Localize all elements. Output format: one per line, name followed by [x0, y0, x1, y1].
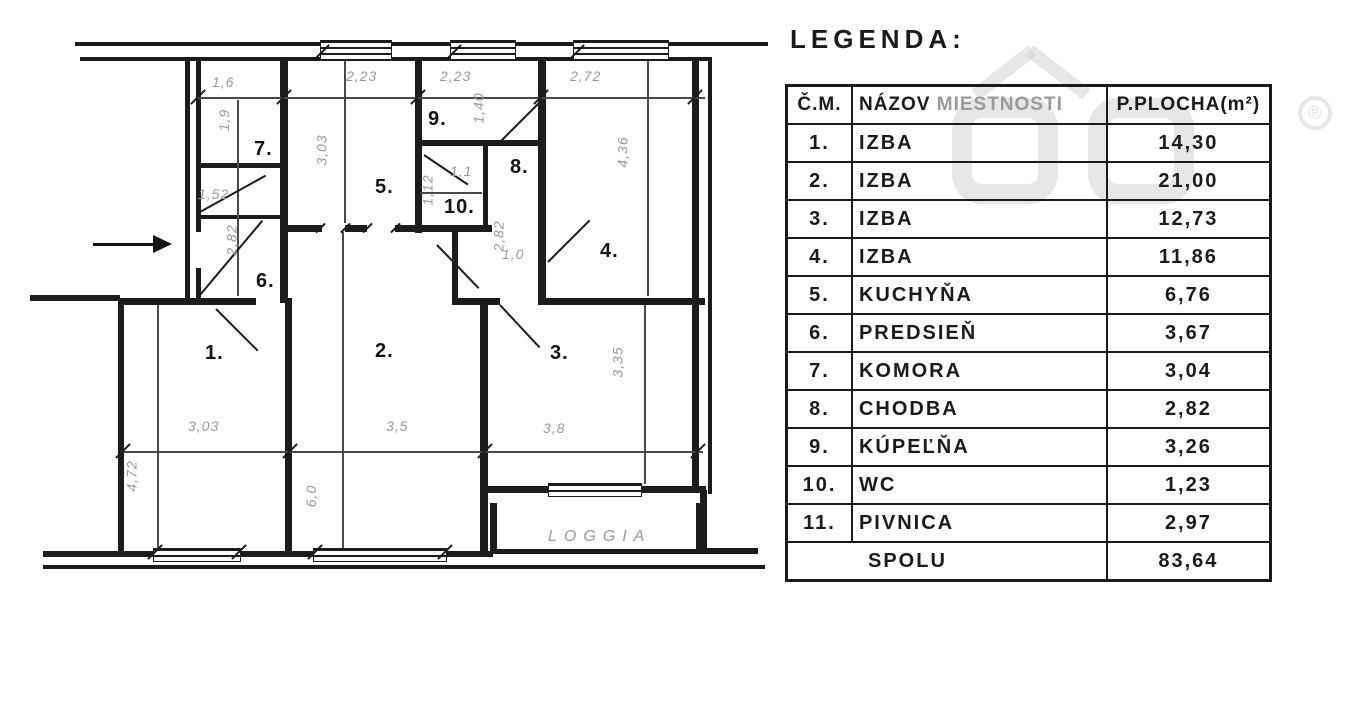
window — [313, 548, 447, 562]
window — [320, 40, 392, 61]
floor-plan: 1.2.3.4.5.6.7.8.9.10.1,61,91,522,822,233… — [0, 0, 784, 720]
cell-room-name: KUCHYŇA — [852, 276, 1107, 314]
dimension-label: 2,23 — [346, 68, 377, 84]
dimension-line — [647, 60, 649, 296]
cell-room-name: IZBA — [852, 200, 1107, 238]
entrance-arrow — [93, 243, 155, 246]
room-number-label: 9. — [428, 108, 447, 131]
dimension-line — [237, 100, 239, 296]
window — [548, 483, 642, 497]
dimension-label: 3,8 — [543, 420, 565, 436]
total-area: 83,64 — [1107, 542, 1271, 581]
header-room-name: NÁZOV MIESTNOSTI — [852, 86, 1107, 125]
cell-room-name: KOMORA — [852, 352, 1107, 390]
legend-row: 1.IZBA14,30 — [787, 124, 1271, 162]
dimension-line — [344, 60, 346, 223]
cell-room-number: 5. — [787, 276, 852, 314]
cell-floor-area: 21,00 — [1107, 162, 1271, 200]
total-label: SPOLU — [787, 542, 1107, 581]
wall-segment — [480, 298, 488, 556]
header-room-name-secondary: MIESTNOSTI — [937, 94, 1063, 115]
room-number-label: 8. — [510, 156, 529, 179]
dimension-label: 2,23 — [440, 68, 471, 84]
cell-room-number: 4. — [787, 238, 852, 276]
dimension-label: 1,0 — [502, 246, 524, 262]
legend-row: 9.KÚPEĽŇA3,26 — [787, 428, 1271, 466]
cell-room-name: IZBA — [852, 124, 1107, 162]
wall-segment — [696, 503, 703, 553]
dimension-label: 3,35 — [610, 346, 626, 377]
legend-row: 4.IZBA11,86 — [787, 238, 1271, 276]
dimension-label: 3,5 — [386, 418, 408, 434]
wall-segment — [415, 140, 545, 146]
door-swing — [499, 304, 540, 348]
cell-room-name: KÚPEĽŇA — [852, 428, 1107, 466]
cell-room-name: CHODBA — [852, 390, 1107, 428]
wall-segment — [196, 57, 201, 232]
cell-floor-area: 2,97 — [1107, 504, 1271, 542]
cell-room-number: 3. — [787, 200, 852, 238]
legend-row: 8.CHODBA2,82 — [787, 390, 1271, 428]
wall-segment — [665, 57, 712, 61]
room-number-label: 4. — [600, 240, 619, 263]
window — [573, 40, 669, 61]
cell-floor-area: 14,30 — [1107, 124, 1271, 162]
cell-room-number: 6. — [787, 314, 852, 352]
legend-table-body: Č.M. NÁZOV MIESTNOSTI P.PLOCHA(m²) 1.IZB… — [787, 86, 1271, 581]
cell-room-name: PIVNICA — [852, 504, 1107, 542]
cell-room-name: PREDSIEŇ — [852, 314, 1107, 352]
room-number-label: 10. — [444, 196, 475, 219]
wall-segment — [30, 295, 120, 301]
cell-room-name: IZBA — [852, 162, 1107, 200]
dimension-label: 6,0 — [303, 485, 319, 507]
cell-floor-area: 2,82 — [1107, 390, 1271, 428]
dimension-label: 3,03 — [188, 418, 219, 434]
cell-floor-area: 3,26 — [1107, 428, 1271, 466]
room-number-label: 2. — [375, 340, 394, 363]
legend-row: 10.WC1,23 — [787, 466, 1271, 504]
cell-room-name: IZBA — [852, 238, 1107, 276]
wall-segment — [43, 551, 155, 557]
dimension-line — [196, 97, 705, 99]
wall-segment — [118, 300, 124, 556]
dimension-label: 4,36 — [615, 136, 631, 167]
dimension-line — [157, 305, 159, 549]
wall-segment — [43, 565, 765, 569]
dimension-label: 1,52 — [198, 186, 229, 202]
legend-header-row: Č.M. NÁZOV MIESTNOSTI P.PLOCHA(m²) — [787, 86, 1271, 125]
legend-row: 2.IZBA21,00 — [787, 162, 1271, 200]
wall-segment — [692, 57, 699, 492]
wall-segment — [452, 298, 500, 305]
dimension-label: 1,6 — [212, 74, 234, 90]
dimension-label: 2,72 — [570, 68, 601, 84]
dimension-line — [342, 232, 344, 548]
legend-row: 7.KOMORA3,04 — [787, 352, 1271, 390]
dimension-label: 3,03 — [314, 134, 330, 165]
entrance-arrow-head — [153, 235, 172, 253]
wall-segment — [237, 551, 315, 557]
cell-floor-area: 12,73 — [1107, 200, 1271, 238]
wall-segment — [708, 57, 712, 494]
dimension-label: 1,1 — [450, 163, 472, 179]
registered-trademark-icon: ® — [1298, 96, 1332, 130]
wall-segment — [196, 163, 285, 168]
dimension-line — [644, 305, 646, 484]
dimension-label: 4,72 — [124, 460, 140, 491]
window — [153, 548, 241, 562]
cell-room-name: WC — [852, 466, 1107, 504]
header-room-number: Č.M. — [787, 86, 852, 125]
wall-segment — [490, 503, 497, 553]
header-room-name-primary: NÁZOV — [859, 94, 931, 115]
legend-total-row: SPOLU83,64 — [787, 542, 1271, 581]
loggia-label: LOGGIA — [548, 528, 651, 546]
cell-floor-area: 11,86 — [1107, 238, 1271, 276]
legend-title: LEGENDA: — [790, 24, 966, 55]
cell-room-number: 9. — [787, 428, 852, 466]
room-number-label: 5. — [375, 176, 394, 199]
cell-room-number: 8. — [787, 390, 852, 428]
dimension-label: 1,40 — [471, 92, 487, 123]
wall-segment — [483, 146, 488, 232]
dimension-label: 1,9 — [216, 109, 232, 131]
legend-row: 3.IZBA12,73 — [787, 200, 1271, 238]
cell-room-number: 1. — [787, 124, 852, 162]
dimension-label: 2,82 — [224, 224, 240, 255]
wall-segment — [700, 548, 758, 554]
header-floor-area: P.PLOCHA(m²) — [1107, 86, 1271, 125]
cell-floor-area: 3,04 — [1107, 352, 1271, 390]
wall-segment — [118, 298, 256, 305]
room-number-label: 3. — [550, 342, 569, 365]
wall-segment — [540, 298, 705, 305]
cell-floor-area: 1,23 — [1107, 466, 1271, 504]
cell-room-number: 10. — [787, 466, 852, 504]
cell-floor-area: 3,67 — [1107, 314, 1271, 352]
cell-floor-area: 6,76 — [1107, 276, 1271, 314]
dimension-line — [120, 451, 703, 453]
legend-table: Č.M. NÁZOV MIESTNOSTI P.PLOCHA(m²) 1.IZB… — [785, 84, 1272, 582]
wall-segment — [196, 215, 285, 219]
legend-row: 11.PIVNICA2,97 — [787, 504, 1271, 542]
cell-room-number: 7. — [787, 352, 852, 390]
room-number-label: 7. — [254, 138, 273, 161]
room-number-label: 1. — [205, 342, 224, 365]
door-swing — [499, 100, 541, 142]
wall-segment — [490, 549, 703, 554]
wall-segment — [285, 298, 292, 556]
door-swing — [547, 220, 590, 263]
legend-row: 5.KUCHYŇA6,76 — [787, 276, 1271, 314]
cell-room-number: 2. — [787, 162, 852, 200]
scanned-floorplan-page: 1.2.3.4.5.6.7.8.9.10.1,61,91,522,822,233… — [0, 0, 1347, 720]
dimension-label: 1,12 — [420, 174, 436, 205]
legend-row: 6.PREDSIEŇ3,67 — [787, 314, 1271, 352]
wall-segment — [185, 57, 190, 305]
room-number-label: 6. — [256, 270, 275, 293]
cell-room-number: 11. — [787, 504, 852, 542]
